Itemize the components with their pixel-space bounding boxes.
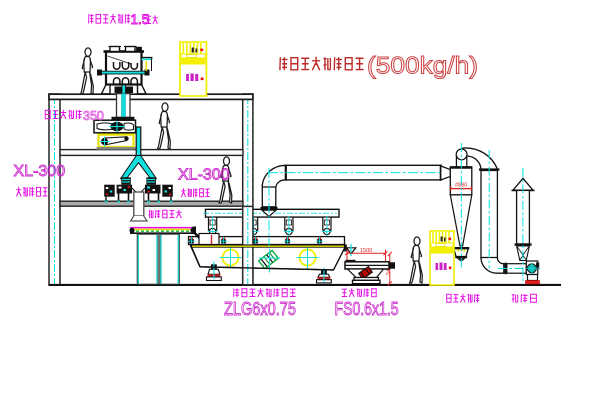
svg-text:1.5: 1.5 — [131, 12, 150, 27]
svg-text:XL-300: XL-300 — [14, 163, 66, 180]
svg-text:FS0.6x1.5: FS0.6x1.5 — [335, 299, 399, 319]
svg-text:ZLG6x0.75: ZLG6x0.75 — [224, 299, 296, 319]
svg-text:1500: 1500 — [360, 248, 372, 254]
svg-text:350: 350 — [83, 109, 104, 123]
svg-text:XL-300: XL-300 — [178, 167, 230, 184]
svg-text:(500kg/h): (500kg/h) — [367, 53, 478, 80]
